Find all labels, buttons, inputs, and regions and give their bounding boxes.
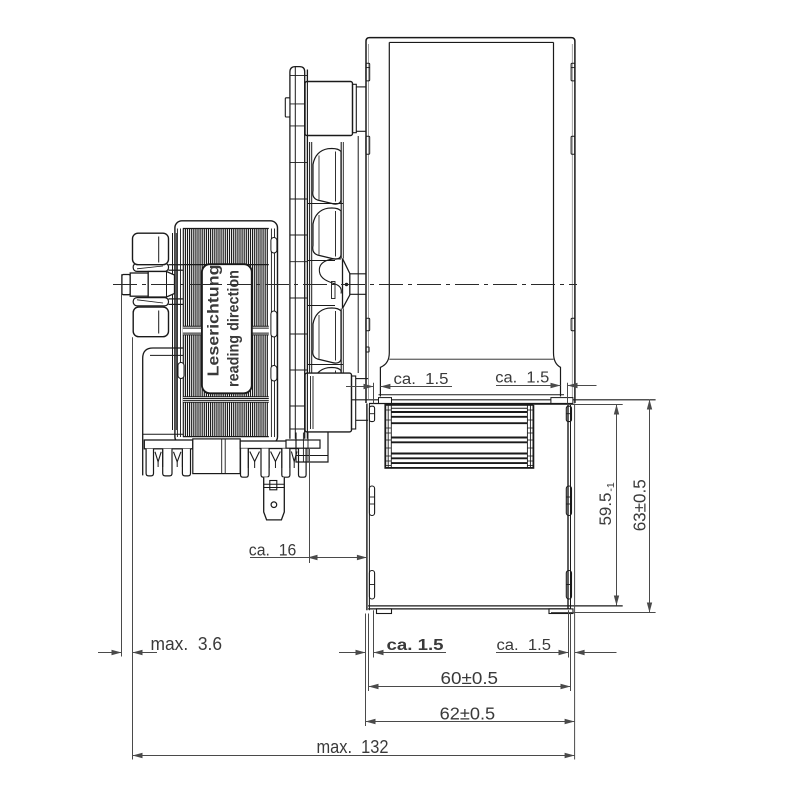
- svg-text:-1: -1: [605, 482, 617, 491]
- svg-text:ca. 16: ca. 16: [249, 540, 296, 559]
- svg-text:ca. 1.5: ca. 1.5: [394, 371, 449, 388]
- svg-text:63±0.5: 63±0.5: [629, 479, 649, 531]
- svg-text:ca. 1.5: ca. 1.5: [497, 637, 552, 654]
- svg-text:Leserichtung: Leserichtung: [206, 265, 223, 377]
- svg-text:ca. 1.5: ca. 1.5: [495, 369, 549, 386]
- svg-text:max. 3.6: max. 3.6: [151, 634, 223, 655]
- svg-text:60±0.5: 60±0.5: [441, 668, 499, 688]
- svg-text:62±0.5: 62±0.5: [440, 703, 496, 723]
- svg-text:max. 132: max. 132: [317, 736, 389, 757]
- svg-text:59.5: 59.5: [597, 493, 615, 526]
- svg-text:ca. 1.5: ca. 1.5: [387, 637, 444, 654]
- svg-text:reading direction: reading direction: [226, 270, 243, 387]
